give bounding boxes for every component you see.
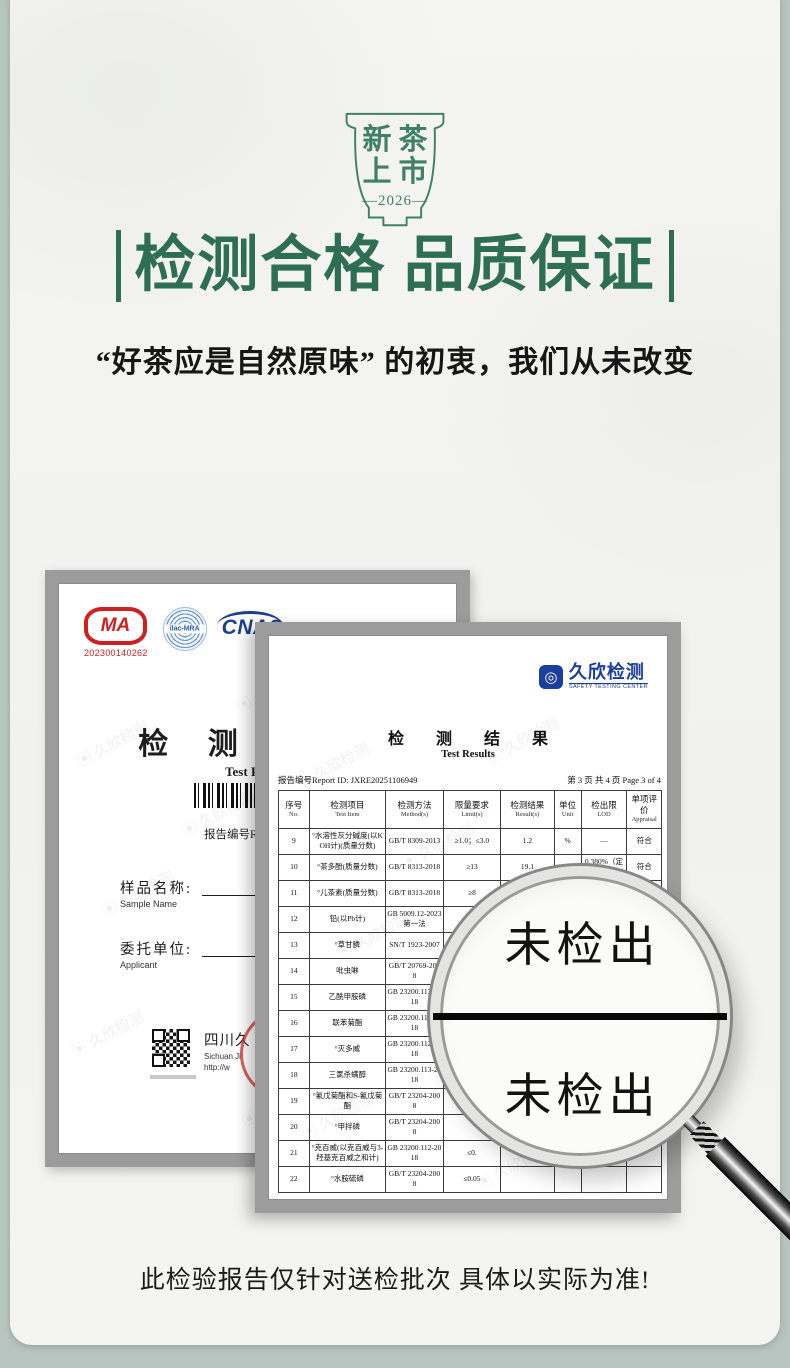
- badge-line1: 新茶: [355, 124, 434, 156]
- heading-right-bar: [669, 230, 674, 302]
- badge-year: —2026—: [362, 193, 428, 210]
- not-detected-top: 未检出: [440, 906, 720, 975]
- table-cell: %: [554, 828, 581, 854]
- table-cell: ≥1.0；≤3.0: [443, 828, 500, 854]
- table-cell: 16: [279, 1010, 310, 1036]
- table-cell: [501, 1166, 555, 1192]
- table-cell: 铅(以Pb计): [309, 906, 386, 932]
- table-cell: GB 23200.113-2018: [386, 1062, 443, 1088]
- magnifier-lens: 未检出 未检出: [430, 866, 730, 1166]
- cma-number: 202300140262: [84, 648, 148, 658]
- hero-heading: 检测合格 品质保证: [0, 230, 790, 302]
- ilac-mra-label: ilac-MRA: [164, 625, 206, 634]
- results-table-head: 序号No.检测项目Test Item检测方法Method(s)限量要求Limit…: [279, 791, 662, 829]
- table-cell: GB/T 23204-2008: [386, 1088, 443, 1114]
- badge-line2: 上市: [355, 156, 434, 188]
- applicant-field: 委托单位: Applicant: [120, 938, 192, 970]
- lab-logo-icon: ◎: [539, 665, 563, 689]
- column-header: 序号No.: [279, 791, 310, 829]
- table-cell: 10: [279, 854, 310, 880]
- table-cell: 22: [279, 1166, 310, 1192]
- table-cell: °水溶性灰分碱度(以KOH计)(质量分数): [309, 828, 386, 854]
- table-cell: GB/T 8313-2018: [386, 880, 443, 906]
- table-cell: GB 23200.112-2018: [386, 1140, 443, 1166]
- table-cell: 11: [279, 880, 310, 906]
- table-cell: 符合: [627, 828, 662, 854]
- page-subtitle: “好茶应是自然原味” 的初衷，我们从未改变: [0, 337, 790, 381]
- table-cell: 18: [279, 1062, 310, 1088]
- cma-logo: MA 202300140262: [84, 607, 148, 658]
- table-cell: 14: [279, 958, 310, 984]
- column-header: 限量要求Limit(s): [443, 791, 500, 829]
- table-cell: 15: [279, 984, 310, 1010]
- report-id: 报告编号Report ID: JXRE20251106949: [278, 774, 417, 786]
- table-cell: GB/T 23204-2008: [386, 1114, 443, 1140]
- table-cell: 联苯菊酯: [309, 1010, 386, 1036]
- table-cell: —: [581, 828, 627, 854]
- table-cell: ≤0.: [443, 1140, 500, 1166]
- column-header: 检测项目Test Item: [309, 791, 386, 829]
- table-cell: °儿茶素(质量分数): [309, 880, 386, 906]
- cma-mark-icon: MA: [84, 607, 147, 645]
- results-title: 检 测 结 果: [268, 725, 668, 749]
- table-cell: GB/T 23204-2008: [386, 1166, 443, 1192]
- results-meta: 报告编号Report ID: JXRE20251106949 第 3 页 共 4…: [278, 774, 661, 786]
- table-cell: °克百威(以克百威与3-羟基克百威之和计): [309, 1140, 386, 1166]
- lab-logo: ◎ 久欣检测 SAFETY TESTING CENTER: [539, 663, 648, 690]
- table-cell: ≤0.05: [443, 1166, 500, 1192]
- table-cell: 17: [279, 1036, 310, 1062]
- qr-caption: [150, 1075, 196, 1079]
- sample-name-label: 样品名称:: [120, 877, 192, 898]
- disclaimer-note: 此检验报告仅针对送检批次 具体以实际为准!: [0, 1260, 790, 1296]
- ilac-mra-logo: ilac-MRA: [163, 607, 207, 651]
- table-cell: [554, 1166, 581, 1192]
- table-cell: 21: [279, 1140, 310, 1166]
- table-cell: °水胺硫磷: [309, 1166, 386, 1192]
- accreditation-logos: MA 202300140262 ilac-MRA CNAS: [84, 607, 283, 658]
- table-cell: [627, 1166, 662, 1192]
- table-cell: °草甘膦: [309, 932, 386, 958]
- applicant-label: 委托单位:: [120, 938, 192, 959]
- table-cell: ≥13: [443, 854, 500, 880]
- column-header: 单位Unit: [554, 791, 581, 829]
- table-cell: 20: [279, 1114, 310, 1140]
- results-title-en: Test Results: [268, 749, 668, 760]
- table-cell: °灭多威: [309, 1036, 386, 1062]
- table-cell: [581, 1166, 627, 1192]
- magnified-grid-line: [433, 1013, 727, 1020]
- page-indicator: 第 3 页 共 4 页 Page 3 of 4: [567, 774, 661, 786]
- table-cell: 12: [279, 906, 310, 932]
- table-row: 22°水胺硫磷GB/T 23204-2008≤0.05: [279, 1166, 662, 1192]
- table-cell: 19: [279, 1088, 310, 1114]
- table-cell: 吡虫啉: [309, 958, 386, 984]
- new-tea-badge: 新茶 上市 —2026—: [335, 110, 455, 232]
- column-header: 检测方法Method(s): [386, 791, 443, 829]
- sample-name-label-en: Sample Name: [120, 899, 192, 909]
- column-header: 检测结果Result(s): [501, 791, 555, 829]
- table-row: 9°水溶性灰分碱度(以KOH计)(质量分数)GB/T 8309-2013≥1.0…: [279, 828, 662, 854]
- table-cell: 1.2: [501, 828, 555, 854]
- heading-left-bar: [116, 230, 121, 302]
- column-header: 检出限LOD: [581, 791, 627, 829]
- qr-code: [152, 1029, 190, 1067]
- table-cell: GB/T 8313-2018: [386, 854, 443, 880]
- lab-logo-subtext: SAFETY TESTING CENTER: [569, 683, 648, 690]
- table-cell: 三氯杀螨醇: [309, 1062, 386, 1088]
- table-cell: SN/T 1923-2007: [386, 932, 443, 958]
- sample-name-field: 样品名称: Sample Name: [120, 877, 192, 909]
- column-header: 单项评价Appraisal: [627, 791, 662, 829]
- lab-logo-text: 久欣检测: [569, 663, 648, 681]
- table-cell: 13: [279, 932, 310, 958]
- table-cell: 9: [279, 828, 310, 854]
- table-cell: °氰戊菊酯和S-氰戊菊酯: [309, 1088, 386, 1114]
- watermark: ▣ 久欣检测: [68, 1006, 148, 1062]
- table-cell: °茶多酚(质量分数): [309, 854, 386, 880]
- table-cell: 乙酰甲胺磷: [309, 984, 386, 1010]
- page-title: 检测合格 品质保证: [134, 231, 655, 301]
- not-detected-bottom: 未检出: [440, 1057, 720, 1126]
- table-cell: GB 5009.12-2023 第一法: [386, 906, 443, 932]
- applicant-label-en: Applicant: [120, 960, 192, 970]
- table-cell: °甲拌磷: [309, 1114, 386, 1140]
- table-cell: GB/T 8309-2013: [386, 828, 443, 854]
